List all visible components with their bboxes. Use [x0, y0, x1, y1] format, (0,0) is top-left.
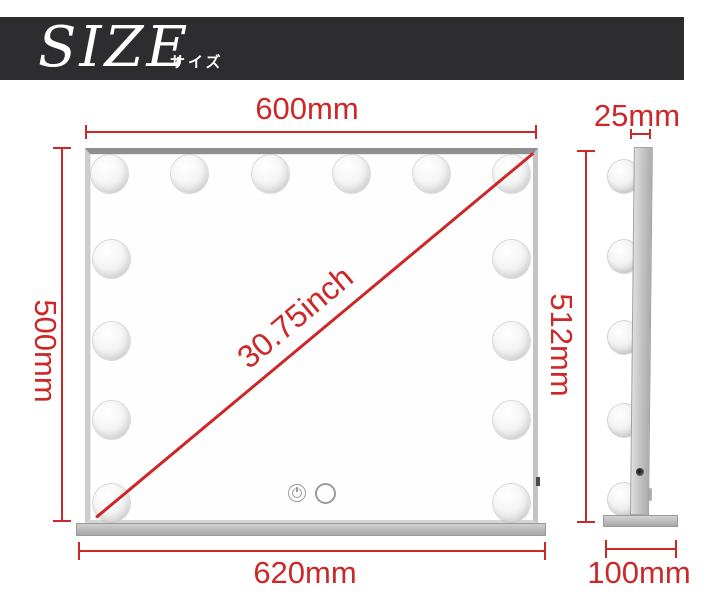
dim-label-left-height: 500mm	[27, 291, 63, 411]
power-icon	[288, 484, 306, 502]
power-icon-bar	[296, 487, 298, 492]
side-base	[603, 515, 678, 527]
light-bulb	[93, 240, 130, 278]
light-bulb	[252, 155, 289, 193]
light-bulb	[93, 401, 130, 439]
dim-line-side-height	[585, 150, 587, 523]
side-knob	[636, 468, 644, 476]
dim-label-side-height: 512mm	[543, 285, 579, 405]
side-panel	[630, 147, 653, 515]
light-bulb	[493, 401, 530, 439]
dim-label-top-width: 600mm	[227, 91, 387, 127]
dim-label-thickness: 25mm	[557, 98, 717, 134]
light-bulb	[333, 155, 370, 193]
light-bulb	[91, 155, 128, 193]
size-subtitle-jp: サイズ	[170, 51, 224, 72]
frame-edge-switch	[536, 477, 540, 486]
size-title: SIZE	[38, 17, 190, 77]
light-bulb	[493, 484, 530, 522]
dim-label-base-depth: 100mm	[559, 555, 719, 591]
light-bulb	[171, 155, 208, 193]
light-bulb	[493, 240, 530, 278]
light-bulb	[93, 322, 130, 360]
ring-icon	[315, 483, 336, 504]
light-bulb	[493, 322, 530, 360]
dim-label-bottom-width: 620mm	[225, 555, 385, 591]
mirror-base	[76, 523, 546, 536]
dim-line-bottom-width	[78, 550, 546, 552]
dim-line-base-depth	[605, 548, 677, 550]
light-bulb	[413, 155, 450, 193]
size-diagram: SIZE サイズ 600mm 500mm 30.75inch 620mm 25m…	[0, 0, 720, 611]
size-banner: SIZE サイズ	[0, 17, 684, 80]
dim-line-top-width	[85, 131, 537, 133]
